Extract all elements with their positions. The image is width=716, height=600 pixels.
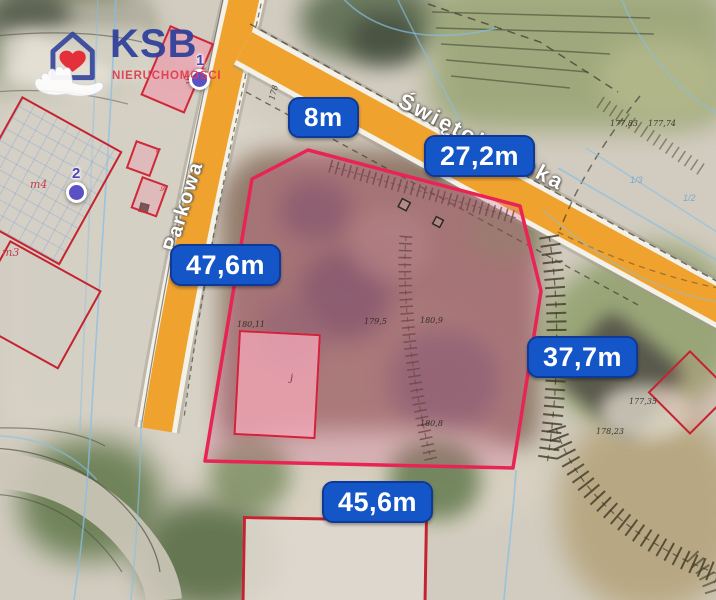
- parcel-label-m4: m4: [30, 178, 47, 191]
- tree-hatch-top-right: [432, 12, 654, 88]
- building-south: [241, 516, 428, 600]
- dimension-badge-8m: 8m: [288, 97, 359, 138]
- spot-height: 177,35: [629, 397, 657, 406]
- parcel-label-m3: m3: [2, 246, 19, 259]
- marker-2-number: 2: [72, 165, 80, 182]
- road-south-west: [0, 428, 164, 600]
- ksb-logo-text: KSB: [110, 22, 197, 67]
- spot-height: 179,5: [364, 317, 387, 326]
- aerial-cadastral-map: m 8 9 m4 m3 j 177,83 177,74 178 179,5 18…: [0, 0, 716, 600]
- utility-label: 1/3: [630, 175, 643, 185]
- spot-height: 180,9: [420, 316, 443, 325]
- ksb-logo-subtitle: NIERUCHOMOŚCI: [112, 70, 221, 82]
- spot-height: 177,83: [610, 119, 638, 128]
- spot-height: 177,74: [648, 119, 676, 128]
- dimension-badge-45-6m: 45,6m: [322, 481, 433, 523]
- utility-label: 1/2: [683, 193, 696, 203]
- dimension-badge-27-2m: 27,2m: [424, 135, 535, 177]
- building-inside-parcel: [234, 330, 321, 439]
- hedge-south-east-curve: [556, 428, 716, 596]
- spot-height: 180,11: [237, 320, 265, 329]
- ksb-logo: KSB NIERUCHOMOŚCI: [30, 16, 240, 108]
- hedge-comb-top-right: [600, 102, 705, 172]
- marker-2-dot: [66, 182, 87, 203]
- spot-height: 178,23: [596, 427, 624, 436]
- spot-height: 180,8: [420, 419, 443, 428]
- dimension-badge-47-6m: 47,6m: [170, 244, 281, 286]
- building-label-j: j: [290, 373, 293, 384]
- dimension-badge-37-7m: 37,7m: [527, 336, 638, 378]
- ksb-house-heart-hand-icon: [30, 16, 112, 104]
